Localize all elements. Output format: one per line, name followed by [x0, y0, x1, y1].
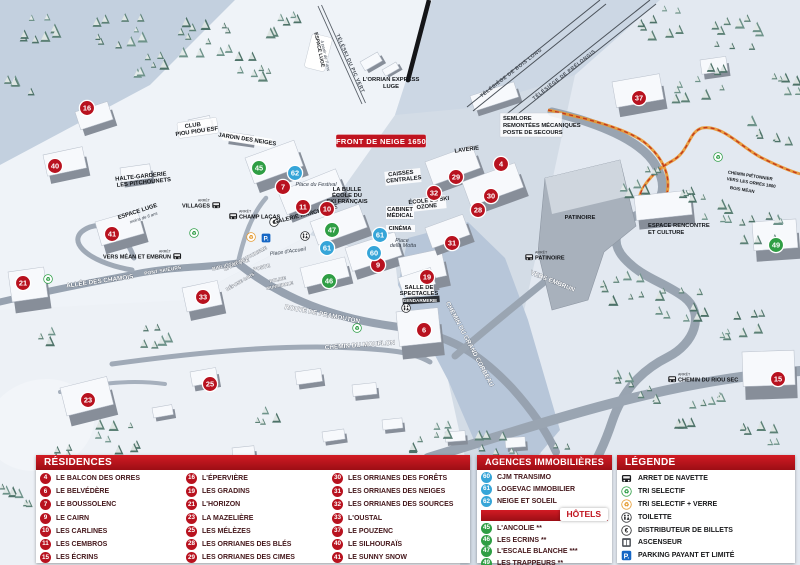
- legend-item-label: LES GRADINS: [202, 488, 250, 495]
- marker-dot: 29: [186, 552, 197, 563]
- map-label: L'ORRIAN EXPRESS: [363, 77, 420, 83]
- marker-dot: 25: [186, 526, 197, 537]
- legend-item: 45 L'ANCOLIE **: [481, 523, 608, 535]
- legend-item-label: LES ORRIANES DES FORÊTS: [348, 475, 447, 482]
- legende-row: TOILETTE: [621, 511, 791, 524]
- svg-text:62: 62: [291, 169, 299, 178]
- bus-stop-label: VILLAGES: [182, 204, 210, 210]
- legend-item-label: LES ORRIANES DES SOURCES: [348, 501, 453, 508]
- svg-text:28: 28: [474, 206, 482, 215]
- bus-stop-prefix: ARRÊT: [159, 249, 172, 254]
- legend-item: 31 LES ORRIANES DES NEIGES: [332, 486, 466, 497]
- marker-dot: 33: [332, 513, 343, 524]
- marker-dot: 32: [332, 499, 343, 510]
- map-label: GENDARMERIE: [403, 298, 437, 303]
- bus-stop-prefix: ARRÊT: [535, 250, 548, 255]
- legend-item-label: NEIGE ET SOLEIL: [497, 498, 557, 505]
- legend-item: 6 LE BELVÉDÈRE: [40, 486, 186, 497]
- svg-text:♻: ♻: [355, 326, 360, 332]
- legende-list: ARRET DE NAVETTE ♻ TRI SELECTIF ♻ TRI SE…: [617, 470, 795, 562]
- legend-item: 60 CJM TRANSIMO: [481, 471, 608, 483]
- map-marker-46[interactable]: 46: [321, 273, 336, 288]
- map-marker-4[interactable]: 4: [493, 156, 508, 171]
- map-marker-10[interactable]: 10: [319, 201, 334, 216]
- bus-stop-label: CHEMIN DU RIOU SEC: [678, 378, 738, 384]
- svg-text:61: 61: [376, 231, 384, 240]
- marker-dot: 37: [332, 526, 343, 537]
- legend-item: 30 LES ORRIANES DES FORÊTS: [332, 473, 466, 484]
- svg-text:37: 37: [635, 94, 643, 103]
- svg-text:31: 31: [448, 239, 456, 248]
- hotels-header-bar: HÔTELS: [481, 510, 608, 521]
- legende-row-label: TOILETTE: [638, 514, 672, 521]
- legend-item-label: L'OUSTAL: [348, 515, 382, 522]
- marker-dot: 16: [186, 473, 197, 484]
- svg-text:♻: ♻: [716, 155, 721, 161]
- marker-dot: 7: [40, 499, 51, 510]
- marker-dot: 19: [186, 486, 197, 497]
- marker-dot: 23: [186, 513, 197, 524]
- resort-map-page: ARRÊTVILLAGESARRÊTCHAMP LACASARRÊTVERS M…: [0, 0, 800, 565]
- bus-stop-label: VERS MÉAN ET EMBRUN: [103, 253, 171, 261]
- legend-item: 16 L'ÉPERVIÈRE: [186, 473, 332, 484]
- marker-dot: 41: [332, 552, 343, 563]
- legende-row: ASCENSEUR: [621, 536, 791, 549]
- map-marker-40[interactable]: 40: [47, 158, 62, 173]
- legend-item-label: LOGEVAC IMMOBILIER: [497, 486, 575, 493]
- legende-row-label: ARRET DE NAVETTE: [638, 475, 708, 482]
- legend-item: 23 LA MAZELIÈRE: [186, 513, 332, 524]
- legend-item: 4 LE BALCON DES ORRES: [40, 473, 186, 484]
- euro-icon: €: [621, 525, 632, 536]
- marker-dot: 47: [481, 546, 492, 557]
- legende-row: P. PARKING PAYANT ET LIMITÉ: [621, 549, 791, 562]
- wc-icon: [301, 232, 310, 241]
- legend-item: 33 L'OUSTAL: [332, 513, 466, 524]
- bus-stop: [173, 253, 181, 259]
- marker-dot: 4: [40, 473, 51, 484]
- hotels-list: 45 L'ANCOLIE ** 46 LES ECRINS ** 47 L'ES…: [481, 523, 608, 565]
- map-marker-16[interactable]: 16: [79, 100, 94, 115]
- map-label: Place du Festival: [295, 182, 337, 188]
- bus-stop-prefix: ARRÊT: [198, 198, 211, 203]
- wc-icon: [621, 512, 632, 523]
- map-label: REMONTÉES MÉCANIQUES: [503, 121, 581, 129]
- marker-dot: 49: [481, 558, 492, 565]
- map-marker-25[interactable]: 25: [202, 376, 217, 391]
- map-label: ET CULTURE: [648, 230, 684, 236]
- bus-stop: [525, 254, 533, 260]
- legend-item: 41 LE SUNNY SNOW: [332, 552, 466, 563]
- svg-text:46: 46: [325, 277, 333, 286]
- map-marker-31[interactable]: 31: [444, 235, 459, 250]
- legend-item-label: LES ECRINS **: [497, 537, 546, 544]
- svg-text:19: 19: [423, 273, 431, 282]
- map-marker-47[interactable]: 47: [324, 222, 339, 237]
- map-label: LUGE: [383, 84, 399, 90]
- legende-header: LÉGENDE: [617, 455, 795, 470]
- svg-text:♻: ♻: [624, 501, 629, 508]
- panel-residences: RÉSIDENCES 4 LE BALCON DES ORRES 6 LE BE…: [36, 455, 470, 563]
- svg-text:€: €: [625, 527, 629, 534]
- marker-dot: 21: [186, 499, 197, 510]
- legend-item: 19 LES GRADINS: [186, 486, 332, 497]
- legende-row: ♻ TRI SELECTIF: [621, 485, 791, 498]
- legend-item: 7 LE BOUSSOLENC: [40, 499, 186, 510]
- marker-dot: 6: [40, 486, 51, 497]
- legend-item: 37 LE POUZENC: [332, 526, 466, 537]
- legend-item-label: LE BOUSSOLENC: [56, 501, 116, 508]
- svg-text:15: 15: [774, 375, 782, 384]
- legende-row-label: ASCENSEUR: [638, 539, 682, 546]
- svg-text:16: 16: [83, 104, 91, 113]
- legend-item-label: LE SILHOURAÏS: [348, 541, 402, 548]
- svg-text:10: 10: [323, 205, 331, 214]
- legend-item: 32 LES ORRIANES DES SOURCES: [332, 499, 466, 510]
- hotels-header: HÔTELS: [560, 508, 608, 521]
- svg-text:9: 9: [376, 261, 380, 270]
- legend-item-label: LES CARLINES: [56, 528, 107, 535]
- legend-item: 61 LOGEVAC IMMOBILIER: [481, 483, 608, 495]
- bus-stop-prefix: ARRÊT: [239, 209, 252, 214]
- svg-text:P.: P.: [624, 554, 630, 561]
- legend-item-label: L'HORIZON: [202, 501, 240, 508]
- parking-icon: P.: [621, 550, 632, 561]
- recycle-yellow-icon: ♻: [247, 233, 256, 242]
- residences-header: RÉSIDENCES: [36, 455, 470, 470]
- svg-text:6: 6: [422, 326, 426, 335]
- legend-item: 9 LE CAIRN: [40, 513, 186, 524]
- map-marker-60[interactable]: 60: [366, 245, 381, 260]
- map-marker-29[interactable]: 29: [448, 169, 463, 184]
- bus-icon: [621, 473, 632, 484]
- marker-dot: 61: [481, 484, 492, 495]
- map-label: MÉDICAL: [387, 211, 414, 219]
- map-marker-30[interactable]: 30: [483, 188, 498, 203]
- svg-text:P.: P.: [263, 236, 268, 243]
- legend-item-label: LES ORRIANES DES NEIGES: [348, 488, 445, 495]
- parking-icon: P.: [262, 234, 271, 243]
- map-label: CINÉMA: [389, 224, 413, 232]
- legend-item-label: LES TRAPPEURS **: [497, 560, 563, 565]
- map-marker-61[interactable]: 61: [372, 227, 387, 242]
- legend-item: 40 LE SILHOURAÏS: [332, 539, 466, 550]
- map-marker-21[interactable]: 21: [15, 275, 30, 290]
- map-label: ESPACE RENCONTRE: [648, 223, 710, 229]
- svg-text:♻: ♻: [46, 277, 51, 283]
- map-marker-33[interactable]: 33: [195, 289, 210, 304]
- map-label: ÉCOLE DU: [332, 191, 362, 199]
- legend-item-label: LES ORRIANES DES CIMES: [202, 554, 295, 561]
- legende-row: ARRET DE NAVETTE: [621, 472, 791, 485]
- recycle-green-icon: ♻: [44, 275, 53, 284]
- legend-item-label: LE BALCON DES ORRES: [56, 475, 140, 482]
- svg-text:41: 41: [108, 230, 116, 239]
- marker-dot: 15: [40, 552, 51, 563]
- svg-text:29: 29: [452, 173, 460, 182]
- svg-text:25: 25: [206, 380, 214, 389]
- legend-item: 11 LES CEMBROS: [40, 539, 186, 550]
- agences-list: 60 CJM TRANSIMO 61 LOGEVAC IMMOBILIER 62…: [481, 471, 608, 508]
- svg-text:60: 60: [370, 249, 378, 258]
- legend-item-label: L'ANCOLIE **: [497, 525, 542, 532]
- map-marker-37[interactable]: 37: [631, 90, 646, 105]
- svg-text:32: 32: [430, 189, 438, 198]
- legend-item: 49 LES TRAPPEURS **: [481, 557, 608, 565]
- agences-header: AGENCES IMMOBILIÈRES: [477, 455, 612, 470]
- panel-agences: AGENCES IMMOBILIÈRES 60 CJM TRANSIMO 61 …: [477, 455, 612, 563]
- legend-item: 28 LES ORRIANES DES BLÉS: [186, 539, 332, 550]
- map-label: POSTE DE SECOURS: [503, 130, 563, 136]
- map-marker-49[interactable]: 49: [768, 237, 783, 252]
- legend-item-label: LA MAZELIÈRE: [202, 515, 253, 522]
- map-marker-15[interactable]: 15: [770, 371, 785, 386]
- legende-row: € DISTRIBUTEUR DE BILLETS: [621, 524, 791, 537]
- bus-stop: [229, 213, 237, 219]
- marker-dot: 45: [481, 523, 492, 534]
- map-label: PATINOIRE: [565, 215, 596, 221]
- legend-item-label: L'ÉPERVIÈRE: [202, 475, 248, 482]
- legend-item: 10 LES CARLINES: [40, 526, 186, 537]
- map-marker-28[interactable]: 28: [470, 202, 485, 217]
- marker-dot: 40: [332, 539, 343, 550]
- legende-row-label: PARKING PAYANT ET LIMITÉ: [638, 552, 734, 559]
- marker-dot: 46: [481, 535, 492, 546]
- panel-legende: LÉGENDE ARRET DE NAVETTE ♻ TRI SELECTIF …: [617, 455, 795, 563]
- svg-text:30: 30: [487, 192, 495, 201]
- legend-item: 47 L'ESCALE BLANCHE ***: [481, 546, 608, 558]
- legend-item: 46 LES ECRINS **: [481, 534, 608, 546]
- map-marker-61[interactable]: 61: [319, 240, 334, 255]
- bus-stop-label: PATINOIRE: [535, 256, 565, 262]
- map-marker-19[interactable]: 19: [419, 269, 434, 284]
- legende-row: ♻ TRI SELECTIF + VERRE: [621, 498, 791, 511]
- map-marker-6[interactable]: 6: [416, 322, 431, 337]
- map-marker-45[interactable]: 45: [251, 160, 266, 175]
- map-marker-62[interactable]: 62: [287, 165, 302, 180]
- legend-item: 15 LES ÉCRINS: [40, 552, 186, 563]
- svg-text:11: 11: [299, 203, 307, 212]
- map-marker-32[interactable]: 32: [426, 185, 441, 200]
- legend-item: 21 L'HORIZON: [186, 499, 332, 510]
- map-label: SEMLORE: [503, 116, 532, 122]
- marker-dot: 28: [186, 539, 197, 550]
- marker-dot: 9: [40, 513, 51, 524]
- recycle-green-icon: ♻: [190, 229, 199, 238]
- wc-icon: [402, 304, 411, 313]
- marker-dot: 31: [332, 486, 343, 497]
- map-label: SPECTACLES: [400, 291, 439, 297]
- marker-dot: 62: [481, 496, 492, 507]
- legend-item-label: LES CEMBROS: [56, 541, 107, 548]
- residences-list: 4 LE BALCON DES ORRES 6 LE BELVÉDÈRE 7 L…: [36, 470, 470, 564]
- svg-text:♻: ♻: [624, 488, 629, 495]
- map-marker-11[interactable]: 11: [295, 199, 310, 214]
- front-de-neige-banner: FRONT DE NEIGE 1650: [336, 135, 426, 148]
- legend-item-label: LE CAIRN: [56, 515, 89, 522]
- bus-stop: [668, 376, 676, 382]
- marker-dot: 30: [332, 473, 343, 484]
- legend-item-label: L'ESCALE BLANCHE ***: [497, 548, 578, 555]
- legend-item-label: LES ORRIANES DES BLÉS: [202, 541, 291, 548]
- svg-text:♻: ♻: [192, 231, 197, 237]
- recycle-green-icon: ♻: [621, 486, 632, 497]
- map-marker-41[interactable]: 41: [104, 226, 119, 241]
- elevator-icon: [621, 537, 632, 548]
- legend-item-label: LE SUNNY SNOW: [348, 554, 407, 561]
- svg-text:40: 40: [51, 162, 59, 171]
- map-label: della Motta: [390, 243, 416, 249]
- svg-text:61: 61: [323, 244, 331, 253]
- legende-row-label: TRI SELECTIF + VERRE: [638, 501, 717, 508]
- svg-text:45: 45: [255, 164, 263, 173]
- map-marker-7[interactable]: 7: [275, 179, 290, 194]
- recycle-yellow-icon: ♻: [621, 499, 632, 510]
- legend-item-label: LE POUZENC: [348, 528, 393, 535]
- map-marker-23[interactable]: 23: [80, 392, 95, 407]
- legende-row-label: DISTRIBUTEUR DE BILLETS: [638, 527, 733, 534]
- recycle-green-icon: ♻: [714, 153, 723, 162]
- marker-dot: 60: [481, 472, 492, 483]
- legend-item: 25 LES MÉLÈZES: [186, 526, 332, 537]
- legend-item-label: CJM TRANSIMO: [497, 474, 551, 481]
- marker-dot: 10: [40, 526, 51, 537]
- bus-stop: [212, 202, 220, 208]
- legend-item-label: LE BELVÉDÈRE: [56, 488, 109, 495]
- legend-item: 62 NEIGE ET SOLEIL: [481, 496, 608, 508]
- legend-item-label: LES ÉCRINS: [56, 554, 98, 561]
- svg-text:49: 49: [772, 241, 780, 250]
- legende-row-label: TRI SELECTIF: [638, 488, 685, 495]
- legend-item: 29 LES ORRIANES DES CIMES: [186, 552, 332, 563]
- svg-text:FRONT DE NEIGE 1650: FRONT DE NEIGE 1650: [336, 137, 426, 146]
- svg-text:33: 33: [199, 293, 207, 302]
- legend-item-label: LES MÉLÈZES: [202, 528, 251, 535]
- svg-text:21: 21: [19, 279, 27, 288]
- svg-text:♻: ♻: [249, 235, 254, 241]
- bus-stop-prefix: ARRÊT: [678, 372, 691, 377]
- marker-dot: 11: [40, 539, 51, 550]
- svg-text:23: 23: [84, 396, 92, 405]
- recycle-green-icon: ♻: [353, 324, 362, 333]
- svg-text:47: 47: [328, 226, 336, 235]
- svg-text:7: 7: [281, 183, 285, 192]
